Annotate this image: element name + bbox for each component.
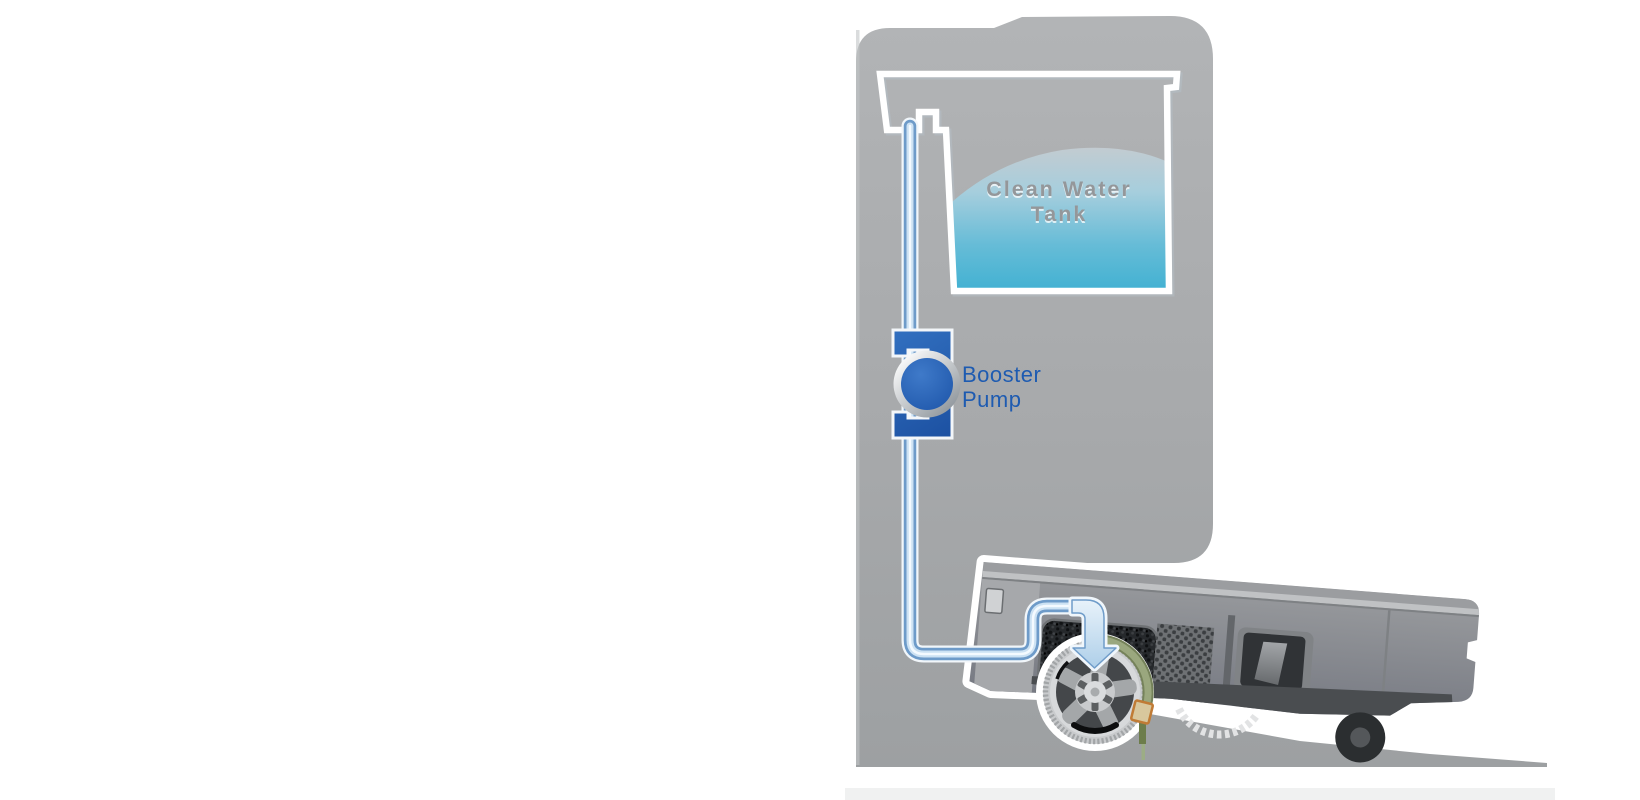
squeegee-tail	[1142, 744, 1146, 760]
wheel-axle	[1091, 688, 1100, 697]
booster-pump-icon	[893, 330, 961, 438]
sensor-window	[985, 588, 1004, 613]
pump-label-line2: Pump	[962, 387, 1021, 412]
tank-label-line1: Clean Water	[986, 177, 1131, 201]
dock-edge-highlight	[856, 30, 860, 765]
scraper-orange	[1131, 700, 1153, 724]
pump-impeller	[901, 358, 953, 410]
illustration-canvas: Clean Water Clean Water Tank Tank	[0, 0, 1640, 800]
dock-water-flow-diagram: Clean Water Clean Water Tank Tank	[0, 0, 1640, 800]
ground-shadow	[845, 788, 1555, 800]
pump-label-line1: Booster	[962, 362, 1041, 387]
tank-label-line2: Tank	[1031, 202, 1088, 226]
